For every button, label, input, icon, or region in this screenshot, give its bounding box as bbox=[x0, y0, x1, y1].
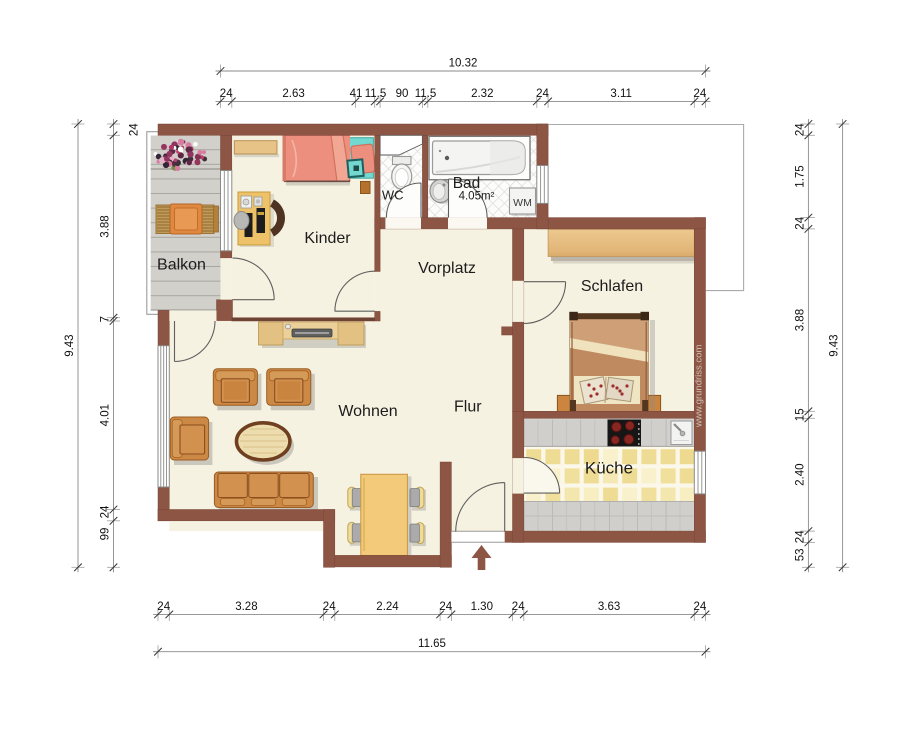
svg-text:Schlafen: Schlafen bbox=[581, 278, 643, 295]
svg-text:7: 7 bbox=[100, 316, 112, 322]
svg-text:24: 24 bbox=[694, 601, 707, 613]
svg-text:15: 15 bbox=[794, 408, 806, 421]
svg-text:24: 24 bbox=[794, 216, 806, 229]
svg-text:9.43: 9.43 bbox=[829, 334, 841, 356]
svg-text:24: 24 bbox=[157, 601, 170, 613]
svg-text:Vorplatz: Vorplatz bbox=[418, 260, 476, 277]
svg-text:3.63: 3.63 bbox=[598, 601, 620, 613]
svg-text:2.63: 2.63 bbox=[282, 88, 304, 100]
svg-text:Wohnen: Wohnen bbox=[338, 403, 397, 420]
svg-text:2.24: 2.24 bbox=[376, 601, 399, 613]
svg-text:3.28: 3.28 bbox=[235, 601, 257, 613]
svg-text:Küche: Küche bbox=[585, 459, 633, 478]
svg-text:99: 99 bbox=[100, 528, 112, 541]
svg-text:11.65: 11.65 bbox=[418, 638, 446, 650]
svg-text:4.01: 4.01 bbox=[100, 404, 112, 426]
svg-text:WM: WM bbox=[513, 197, 532, 209]
svg-text:53: 53 bbox=[794, 549, 806, 562]
svg-text:1.30: 1.30 bbox=[471, 601, 493, 613]
svg-text:24: 24 bbox=[794, 123, 806, 136]
svg-text:2.40: 2.40 bbox=[794, 464, 806, 486]
svg-text:24: 24 bbox=[129, 123, 141, 136]
svg-text:2.32: 2.32 bbox=[471, 88, 493, 100]
svg-text:90: 90 bbox=[396, 88, 409, 100]
svg-text:24: 24 bbox=[694, 88, 707, 100]
svg-text:3.11: 3.11 bbox=[610, 88, 632, 100]
svg-text:4.05m²: 4.05m² bbox=[459, 191, 495, 203]
svg-text:3.88: 3.88 bbox=[794, 309, 806, 331]
svg-text:41: 41 bbox=[350, 88, 363, 100]
svg-text:WC: WC bbox=[382, 188, 404, 203]
svg-text:24: 24 bbox=[794, 530, 806, 543]
svg-text:10.32: 10.32 bbox=[449, 58, 478, 70]
svg-text:Kinder: Kinder bbox=[304, 230, 351, 247]
svg-text:11.5: 11.5 bbox=[415, 88, 437, 100]
svg-text:24: 24 bbox=[220, 88, 233, 100]
svg-text:9.43: 9.43 bbox=[64, 334, 76, 356]
svg-text:Bad: Bad bbox=[453, 175, 481, 192]
svg-text:24: 24 bbox=[439, 601, 452, 613]
svg-text:24: 24 bbox=[323, 601, 336, 613]
svg-text:24: 24 bbox=[100, 505, 112, 518]
svg-text:1.75: 1.75 bbox=[794, 165, 806, 187]
svg-text:24: 24 bbox=[512, 601, 525, 613]
svg-text:24: 24 bbox=[536, 88, 549, 100]
svg-text:www.grundriss.com: www.grundriss.com bbox=[694, 345, 705, 428]
svg-text:3.88: 3.88 bbox=[100, 215, 112, 237]
svg-text:Balkon: Balkon bbox=[157, 257, 206, 274]
svg-text:11.5: 11.5 bbox=[365, 88, 387, 100]
svg-text:Flur: Flur bbox=[454, 398, 482, 415]
